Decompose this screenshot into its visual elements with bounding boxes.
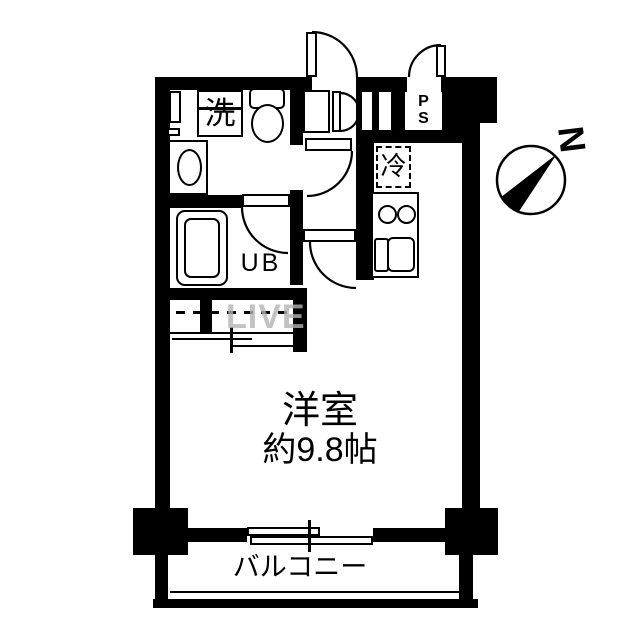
washroom-door-arc: [307, 151, 352, 196]
shoe-cabinet-door-arc-bottom: [341, 112, 359, 131]
compass: N: [497, 124, 594, 214]
compass-needle: [502, 156, 555, 212]
balcony-label: バルコニー: [200, 553, 400, 581]
shoe-cabinet-door-arc-top: [341, 93, 359, 112]
watermark: LIVE: [226, 298, 306, 337]
ps-door-arc: [409, 45, 441, 77]
compass-north-label: N: [550, 124, 594, 155]
room-size-label: 約9.8帖: [230, 433, 410, 469]
floor-plan: PS 洗 UB 冷: [0, 0, 640, 640]
entrance-door-arc: [312, 32, 357, 77]
room-door-arc: [310, 242, 356, 288]
room-name-label: 洋室: [240, 392, 400, 432]
bath-door-arc: [242, 207, 288, 253]
plan-linework: N: [0, 0, 640, 640]
